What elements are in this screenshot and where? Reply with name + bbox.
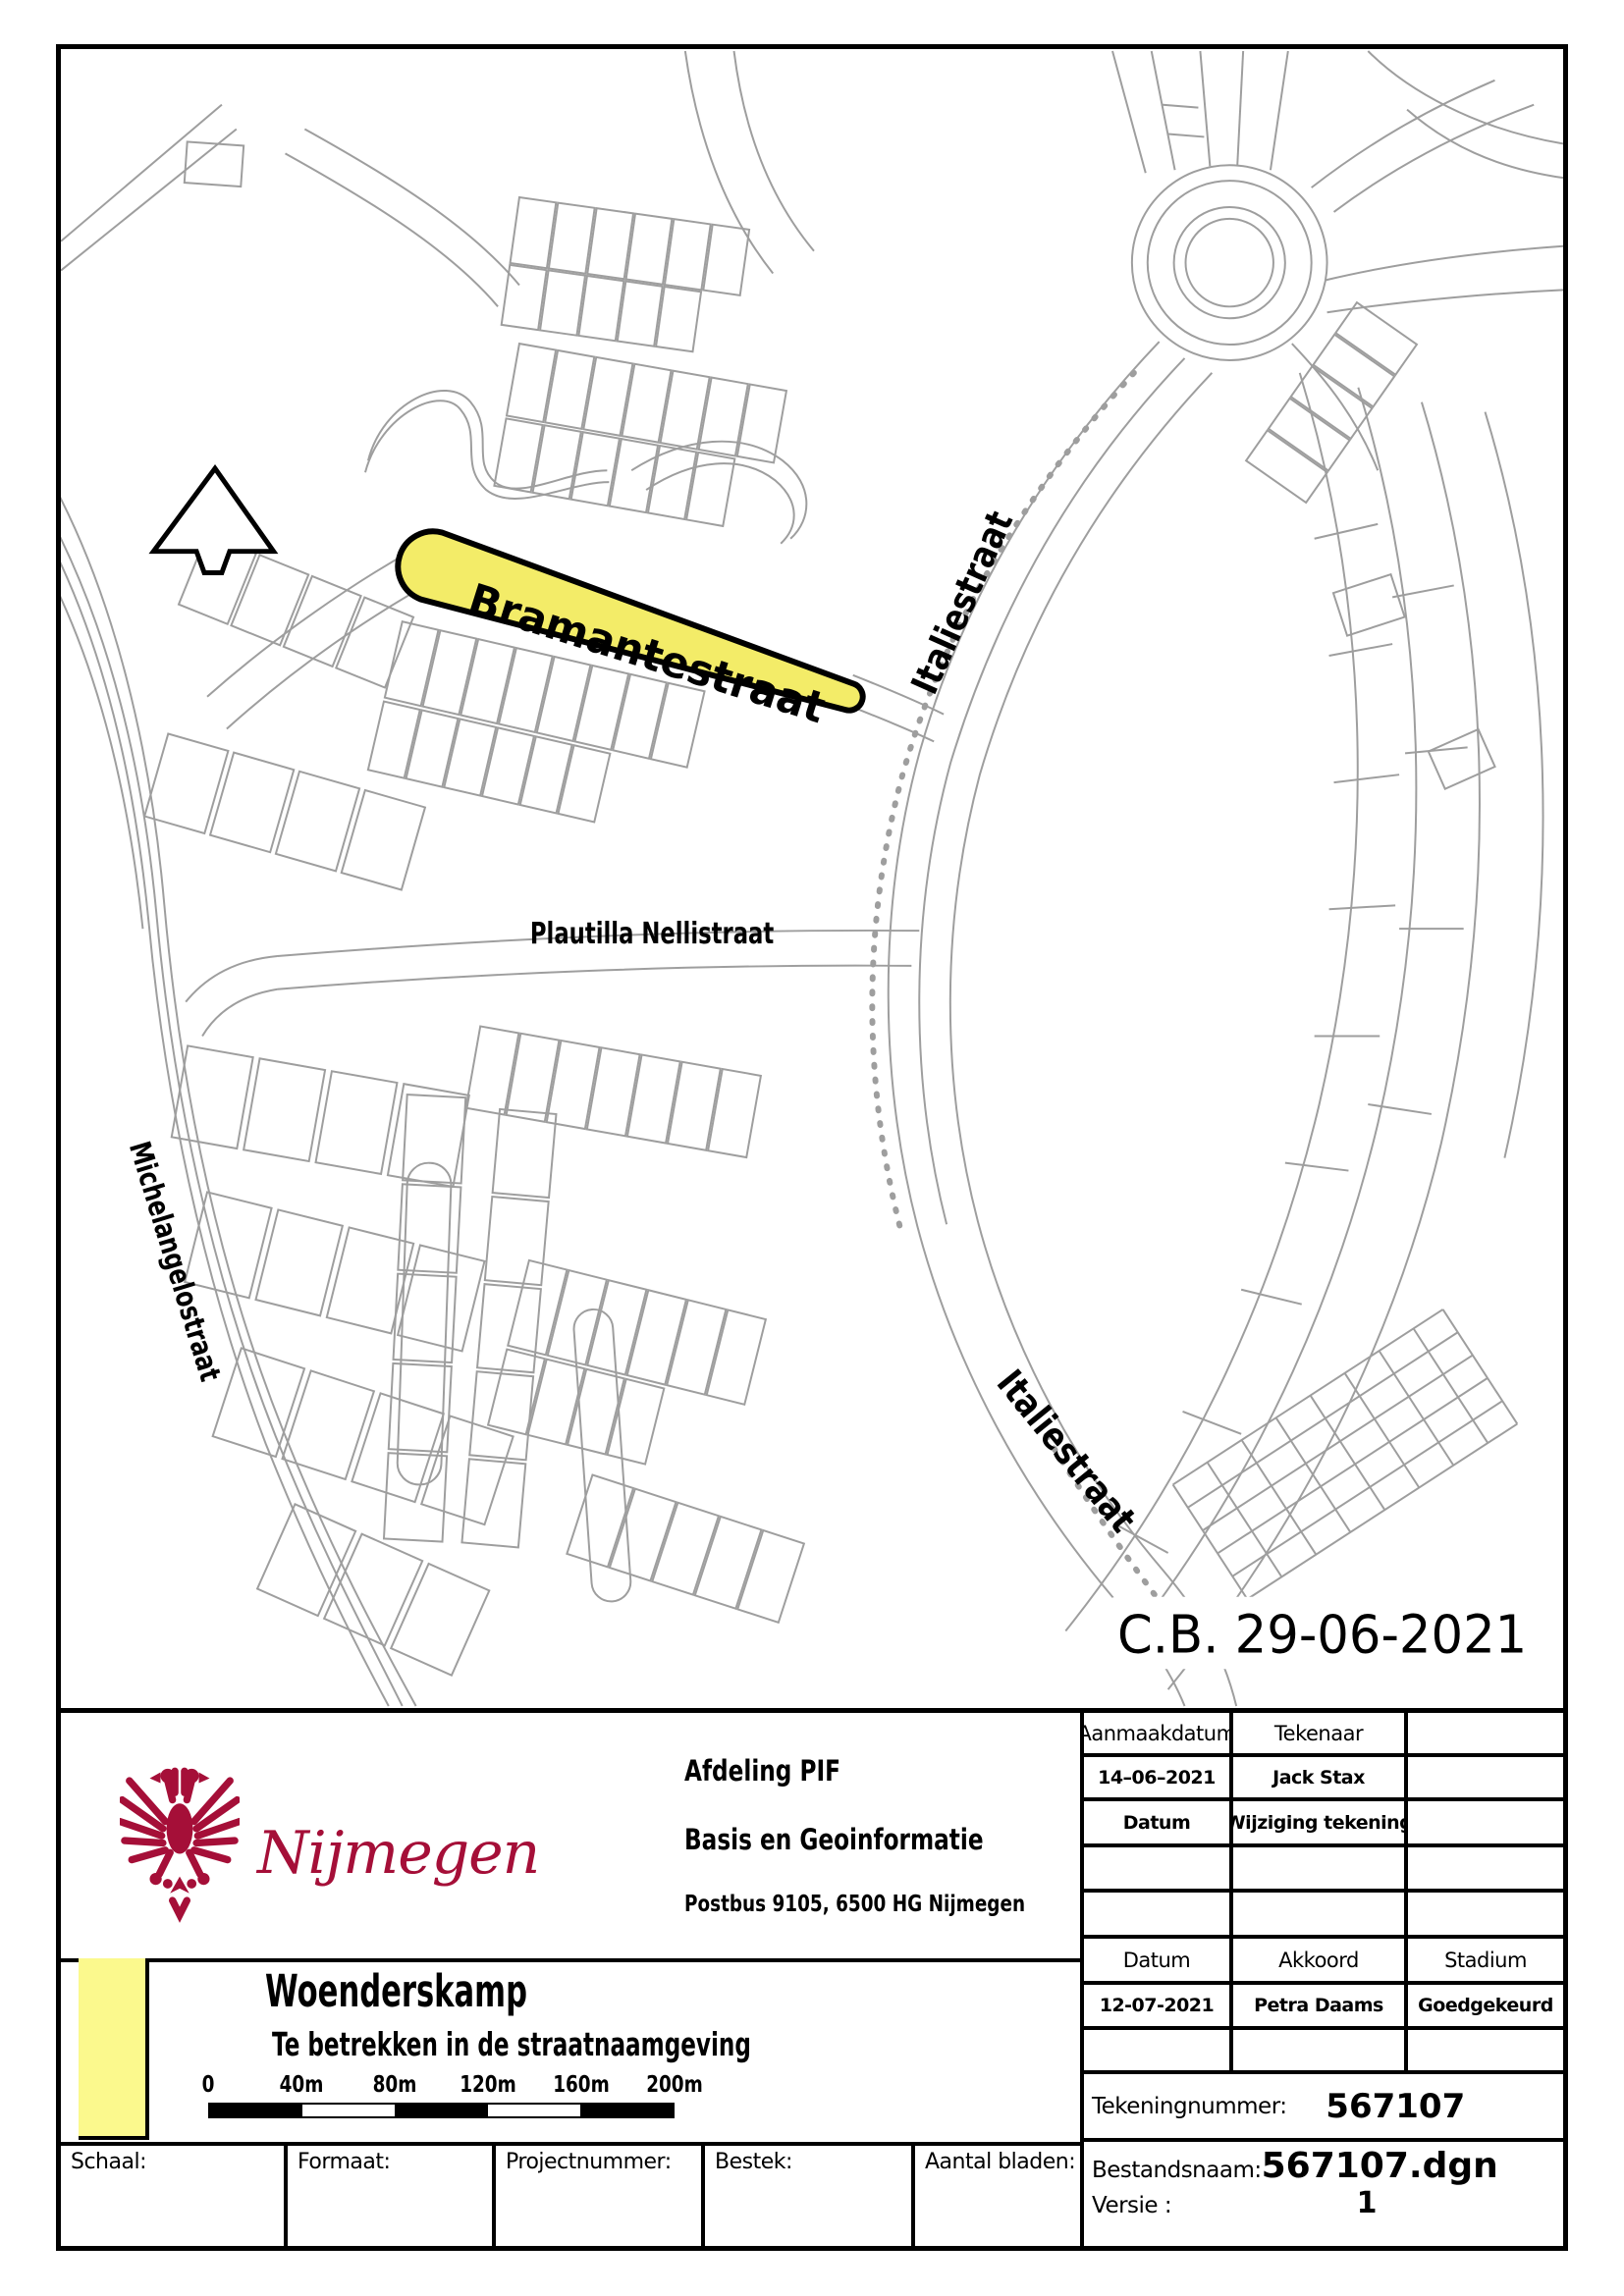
bottom-field-strip: Schaal: Formaat: Projectnummer: Bestek: … <box>61 2142 1080 2246</box>
cell-stadium: Stadium <box>1408 1939 1563 1981</box>
cell-datum: Datum <box>1084 1939 1233 1981</box>
cell-aanmaakdatum: Aanmaakdatum <box>1084 1713 1233 1753</box>
table-row: Datum Wijziging tekening <box>1084 1801 1563 1847</box>
field-projectnummer: Projectnummer: <box>496 2146 705 2246</box>
map-frame: C.B. 29-06-2021 Bramantestraat Italiestr… <box>56 44 1568 1713</box>
tree-lines <box>872 373 1197 1650</box>
file-name-value: 567107.dgn <box>1262 2146 1577 2186</box>
street-label-michelangelostraat: Michelangelostraat <box>122 1138 228 1386</box>
scale-bar <box>208 2103 675 2118</box>
cell-tekenaar: Tekenaar <box>1233 1713 1408 1753</box>
cell-empty <box>1233 1847 1408 1889</box>
cell-drafter-name: Jack Stax <box>1233 1757 1408 1797</box>
cell-empty <box>1084 1847 1233 1889</box>
scale-tick-label: 40m <box>280 2072 324 2098</box>
highlighted-street: Bramantestraat <box>398 531 862 733</box>
cell-empty <box>1084 1893 1233 1935</box>
cell-datum-header: Datum <box>1084 1801 1233 1843</box>
drawing-number-value: 567107 <box>1326 2087 1524 2126</box>
scale-tick-label: 120m <box>460 2072 516 2098</box>
legend-highlight-swatch <box>79 1958 149 2140</box>
cell-empty <box>1408 1893 1563 1935</box>
table-row: Datum Akkoord Stadium <box>1084 1939 1563 1985</box>
nijmegen-eagle-logo <box>120 1757 240 1929</box>
title-block: Nijmegen Afdeling PIF Basis en Geoinform… <box>56 1713 1568 2251</box>
table-row <box>1084 1847 1563 1893</box>
table-row: 14–06–2021 Jack Stax <box>1084 1757 1563 1801</box>
approval-stamp: C.B. 29-06-2021 <box>1107 1597 1538 1670</box>
unit-name: Basis en Geoinformatie <box>684 1823 984 1856</box>
project-subtitle: Te betrekken in de straatnaamgeving <box>272 2025 751 2063</box>
approval-stamp-text: C.B. 29-06-2021 <box>1117 1603 1527 1665</box>
table-row <box>1084 1893 1563 1939</box>
street-label-italiestraat-bottom: Italiestraat <box>989 1362 1145 1540</box>
street-label-italiestraat-top: Italiestraat <box>902 505 1021 700</box>
revision-table: Aanmaakdatum Tekenaar 14–06–2021 Jack St… <box>1080 1713 1563 2246</box>
field-bestek: Bestek: <box>705 2146 915 2246</box>
cell-approval-status: Goedgekeurd <box>1408 1985 1563 2026</box>
cell-empty <box>1084 2030 1233 2070</box>
table-row: 12-07-2021 Petra Daams Goedgekeurd <box>1084 1985 1563 2030</box>
cell-empty <box>1408 1757 1563 1797</box>
cell-approver-name: Petra Daams <box>1233 1985 1408 2026</box>
file-name-label: Bestandsnaam: <box>1092 2158 1262 2183</box>
file-name-row: Bestandsnaam: 567107.dgn Versie : 1 <box>1084 2142 1563 2246</box>
cell-akkoord: Akkoord <box>1233 1939 1408 1981</box>
cell-approval-date: 12-07-2021 <box>1084 1985 1233 2026</box>
cell-empty <box>1408 1801 1563 1843</box>
scale-tick-label: 0 <box>202 2072 215 2098</box>
cell-empty <box>1233 1893 1408 1935</box>
cell-wijziging-header: Wijziging tekening <box>1233 1801 1408 1843</box>
field-schaal: Schaal: <box>61 2146 288 2246</box>
drawing-number-row: Tekeningnummer: 567107 <box>1084 2074 1563 2142</box>
cell-empty <box>1233 2030 1408 2070</box>
version-value: 1 <box>1357 2186 1505 2220</box>
department-name: Afdeling PIF <box>684 1754 840 1788</box>
cell-empty <box>1408 1847 1563 1889</box>
table-row <box>1084 2030 1563 2074</box>
cell-creation-date: 14–06–2021 <box>1084 1757 1233 1797</box>
section-divider <box>61 1958 1080 1962</box>
drawing-number-label: Tekeningnummer: <box>1084 2094 1287 2119</box>
nijmegen-wordmark: Nijmegen <box>257 1819 539 1888</box>
drawing-sheet: C.B. 29-06-2021 Bramantestraat Italiestr… <box>0 0 1624 2296</box>
scale-tick-label: 80m <box>373 2072 417 2098</box>
project-title: Woenderskamp <box>265 1965 527 2017</box>
scale-tick-label: 160m <box>553 2072 610 2098</box>
cell-empty <box>1408 2030 1563 2070</box>
field-formaat: Formaat: <box>288 2146 496 2246</box>
version-label: Versie : <box>1092 2193 1298 2218</box>
street-network <box>61 51 1563 1706</box>
address-line: Postbus 9105, 6500 HG Nijmegen <box>684 1892 1025 1917</box>
field-aantal-bladen: Aantal bladen: <box>915 2146 1080 2246</box>
scale-tick-label: 200m <box>646 2072 703 2098</box>
cell-empty <box>1408 1713 1563 1753</box>
street-map: C.B. 29-06-2021 Bramantestraat Italiestr… <box>61 49 1563 1708</box>
parcel-blocks <box>144 197 1517 1676</box>
table-row: Aanmaakdatum Tekenaar <box>1084 1713 1563 1757</box>
street-label-plautilla-nellistraat: Plautilla Nellistraat <box>530 917 774 951</box>
